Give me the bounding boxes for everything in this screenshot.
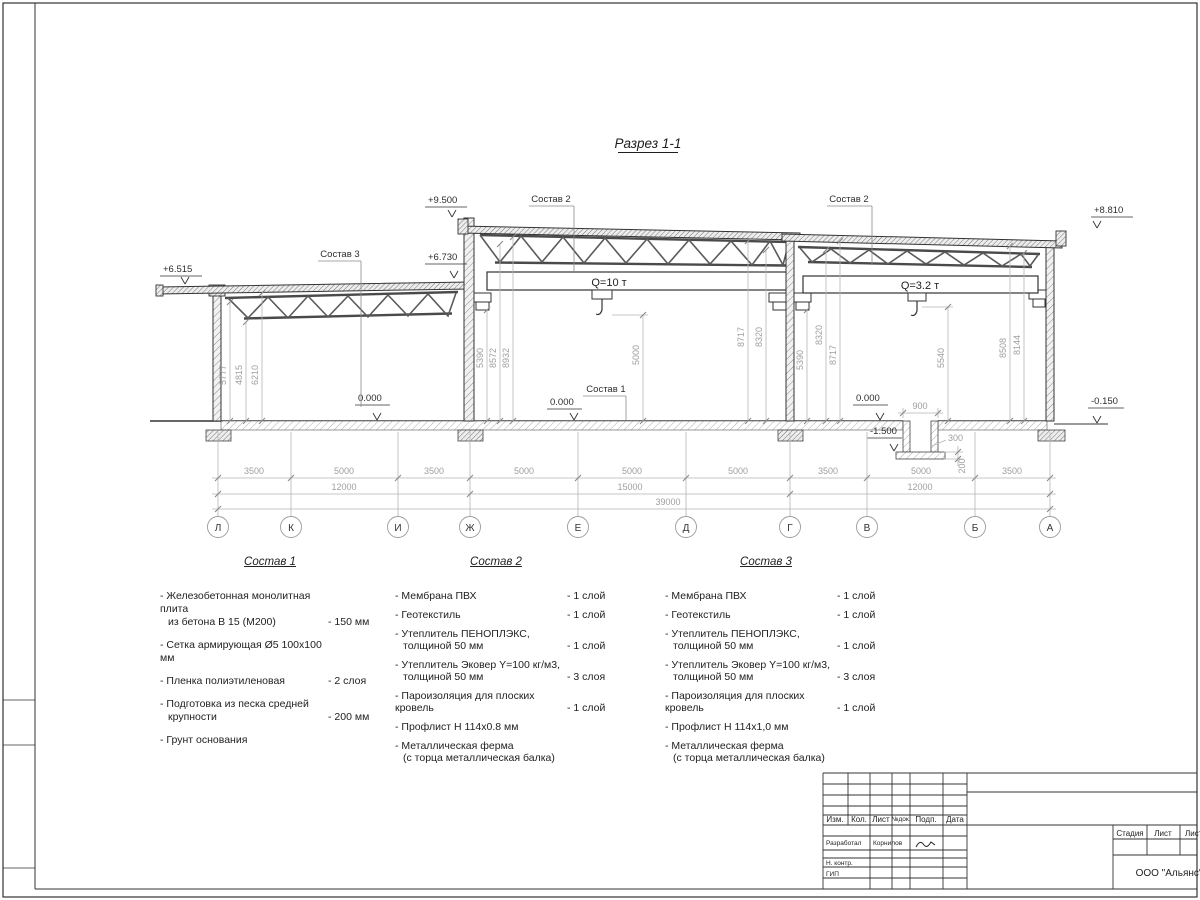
dim: 5000 [334, 466, 354, 476]
vdim: 5540 [936, 348, 946, 368]
level-label: -1.500 [870, 426, 897, 437]
tb-header-podp: Подп. [915, 815, 936, 824]
legend-item: - Мембрана ПВХ - 1 слой [395, 590, 647, 602]
vdim: 8508 [998, 338, 1008, 358]
crane-capacity-label: Q=10 т [591, 277, 626, 289]
legend-item: - Мембрана ПВХ - 1 слой [665, 590, 917, 602]
corbel [769, 293, 786, 302]
truss-bottom-chord [244, 314, 452, 319]
axis-bubbles: Л К И Ж Е Д Г В Б А [208, 517, 1061, 538]
vdim: 8320 [814, 325, 824, 345]
dim: 5000 [728, 466, 748, 476]
floor-slab [221, 421, 903, 430]
tb-developer-name: Корнилов [873, 840, 903, 847]
axis-label: Ж [465, 523, 475, 534]
foundation-pad [206, 430, 231, 441]
tb-header-list: Лист [872, 815, 890, 824]
legend-item: - Утеплитель ПЕНОПЛЭКС,толщиной 50 мм - … [665, 628, 917, 652]
signature [916, 842, 935, 847]
axis-label: К [288, 523, 294, 534]
tb-ncontr-label: Н. контр. [826, 860, 853, 867]
level-label: +6.730 [428, 252, 457, 263]
level-label: +8.810 [1094, 205, 1123, 216]
title-block: Изм. Кол. Лист №док. Подп. Дата Разработ… [823, 773, 1200, 889]
legend-item: - Профлист Н 114х1,0 мм [665, 721, 917, 733]
legend-item: - Геотекстиль - 1 слой [395, 609, 647, 621]
dimension-chains: 3500 5000 3500 5000 5000 5000 3500 5000 … [212, 432, 1056, 517]
legend-title: Состав 2 [395, 556, 647, 568]
level-label: +9.500 [428, 195, 457, 206]
legend-item: - Металлическая ферма(с торца металличес… [665, 740, 917, 764]
pit-base-dim: 200 [957, 458, 967, 473]
corbel [474, 293, 491, 302]
vdim: 8320 [754, 327, 764, 347]
view-title: Разрез 1-1 [615, 136, 682, 151]
wall-A [1046, 241, 1054, 421]
floor-slab [938, 421, 1047, 430]
dim-subtotal: 12000 [907, 482, 932, 492]
column-G [786, 240, 794, 421]
vdim: 5390 [475, 348, 485, 368]
legend-item: - Пленка полиэтиленовая - 2 слоя [160, 675, 380, 688]
legend-item: - Утеплитель Эковер Y=100 кг/м3,толщиной… [395, 659, 647, 683]
wall-L [213, 294, 221, 421]
legend-title: Состав 1 [160, 556, 380, 568]
dim: 3500 [1002, 466, 1022, 476]
level-label: 0.000 [358, 393, 382, 404]
dim-subtotal: 12000 [331, 482, 356, 492]
legend-item: - Утеплитель Эковер Y=100 кг/м3,толщиной… [665, 659, 917, 683]
axis-label: Л [215, 523, 222, 534]
dim: 5000 [911, 466, 931, 476]
dim: 3500 [818, 466, 838, 476]
level-label: +6.515 [163, 264, 192, 275]
legend-item: - Подготовка из песка среднейкрупности -… [160, 698, 380, 724]
crane-capacity-label: Q=3.2 т [901, 280, 939, 292]
callout-label: Состав 2 [531, 194, 570, 205]
dim: 5000 [514, 466, 534, 476]
crane-hook [908, 293, 926, 316]
legend-item: - Геотекстиль - 1 слой [665, 609, 917, 621]
vdim: 8144 [1012, 335, 1022, 355]
wall-Zh [464, 218, 474, 421]
foundation-pad [778, 430, 803, 441]
corbel [794, 293, 811, 302]
building-section: Q=10 т Q=3.2 т [150, 218, 1108, 459]
truss-bottom-chord [495, 263, 786, 266]
legend-item: - Металлическая ферма(с торца металличес… [395, 740, 647, 764]
tb-header-ndok: №док. [891, 816, 910, 823]
level-label: -0.150 [1091, 396, 1118, 407]
foundation-pad [458, 430, 483, 441]
level-label: 0.000 [856, 393, 880, 404]
legend-item: - Железобетонная монолитная плитаиз бето… [160, 590, 380, 629]
tb-header-kol: Кол. [851, 815, 867, 824]
axis-label: В [864, 523, 871, 534]
tb-header-izm: Изм. [826, 815, 843, 824]
axis-label: Г [787, 523, 793, 534]
foundation-pad [1038, 430, 1065, 441]
drawing-sheet: Разрез 1-1 [0, 0, 1200, 900]
dim-total: 39000 [655, 497, 680, 507]
tb-sheets: Листов [1185, 829, 1200, 838]
callout-label: Состав 2 [829, 194, 868, 205]
tb-sheet: Лист [1154, 829, 1172, 838]
dim: 5000 [622, 466, 642, 476]
axis-label: И [394, 523, 401, 534]
vdim: 8932 [501, 348, 511, 368]
pit [896, 421, 945, 459]
tb-header-data: Дата [946, 815, 964, 824]
vdim: 5390 [795, 350, 805, 370]
dim: 3500 [424, 466, 444, 476]
vdim: 6210 [250, 365, 260, 385]
legend-item: - Грунт основания [160, 734, 380, 747]
middle-building: Q=10 т [458, 218, 800, 421]
legend-item: - Утеплитель ПЕНОПЛЭКС,толщиной 50 мм - … [395, 628, 647, 652]
roof-right [782, 234, 1062, 248]
legend-item: - Сетка армирующая Ø5 100х100 мм [160, 639, 380, 665]
legend-sostav-3: Состав 3 - Мембрана ПВХ - 1 слой - Геоте… [665, 556, 917, 771]
dim: 3500 [244, 466, 264, 476]
tb-stage: Стадия [1116, 829, 1143, 838]
vdim: 5777 [218, 365, 228, 385]
axis-label: Д [683, 523, 690, 534]
legend-title: Состав 3 [665, 556, 917, 568]
vdim: 8717 [736, 327, 746, 347]
right-building: Q=3.2 т [782, 231, 1066, 421]
tb-gip-label: ГИП [826, 871, 839, 878]
legend-sostav-1: Состав 1 - Железобетонная монолитная пли… [160, 556, 380, 757]
pit-wall-dim: 300 [948, 433, 963, 443]
dim-subtotal: 15000 [617, 482, 642, 492]
legend-sostav-2: Состав 2 - Мембрана ПВХ - 1 слой - Геоте… [395, 556, 647, 771]
vdim: 8717 [828, 345, 838, 365]
callout-label: Состав 3 [320, 249, 359, 260]
axis-label: Б [972, 523, 979, 534]
vertical-dimensions: 5777 4815 6210 5390 8572 8932 5000 8717 … [218, 234, 1027, 424]
vdim: 8572 [488, 348, 498, 368]
pit-width-dim: 900 [912, 401, 927, 411]
crane-hook [592, 290, 612, 315]
callout-label: Состав 1 [586, 384, 625, 395]
tb-company: ООО "Альянс" [1136, 868, 1200, 879]
legend-item: - Пароизоляция для плоских кровель - 1 с… [665, 690, 917, 714]
legend-item: - Профлист Н 114х0.8 мм [395, 721, 647, 733]
axis-label: А [1047, 523, 1054, 534]
vdim: 4815 [234, 365, 244, 385]
tb-developer-label: Разработал [826, 839, 862, 847]
left-building [156, 282, 470, 421]
legend-item: - Пароизоляция для плоских кровель - 1 с… [395, 690, 647, 714]
axis-label: Е [575, 523, 582, 534]
crane-beam-mid [487, 272, 787, 290]
vdim: 5000 [631, 345, 641, 365]
level-label: 0.000 [550, 397, 574, 408]
